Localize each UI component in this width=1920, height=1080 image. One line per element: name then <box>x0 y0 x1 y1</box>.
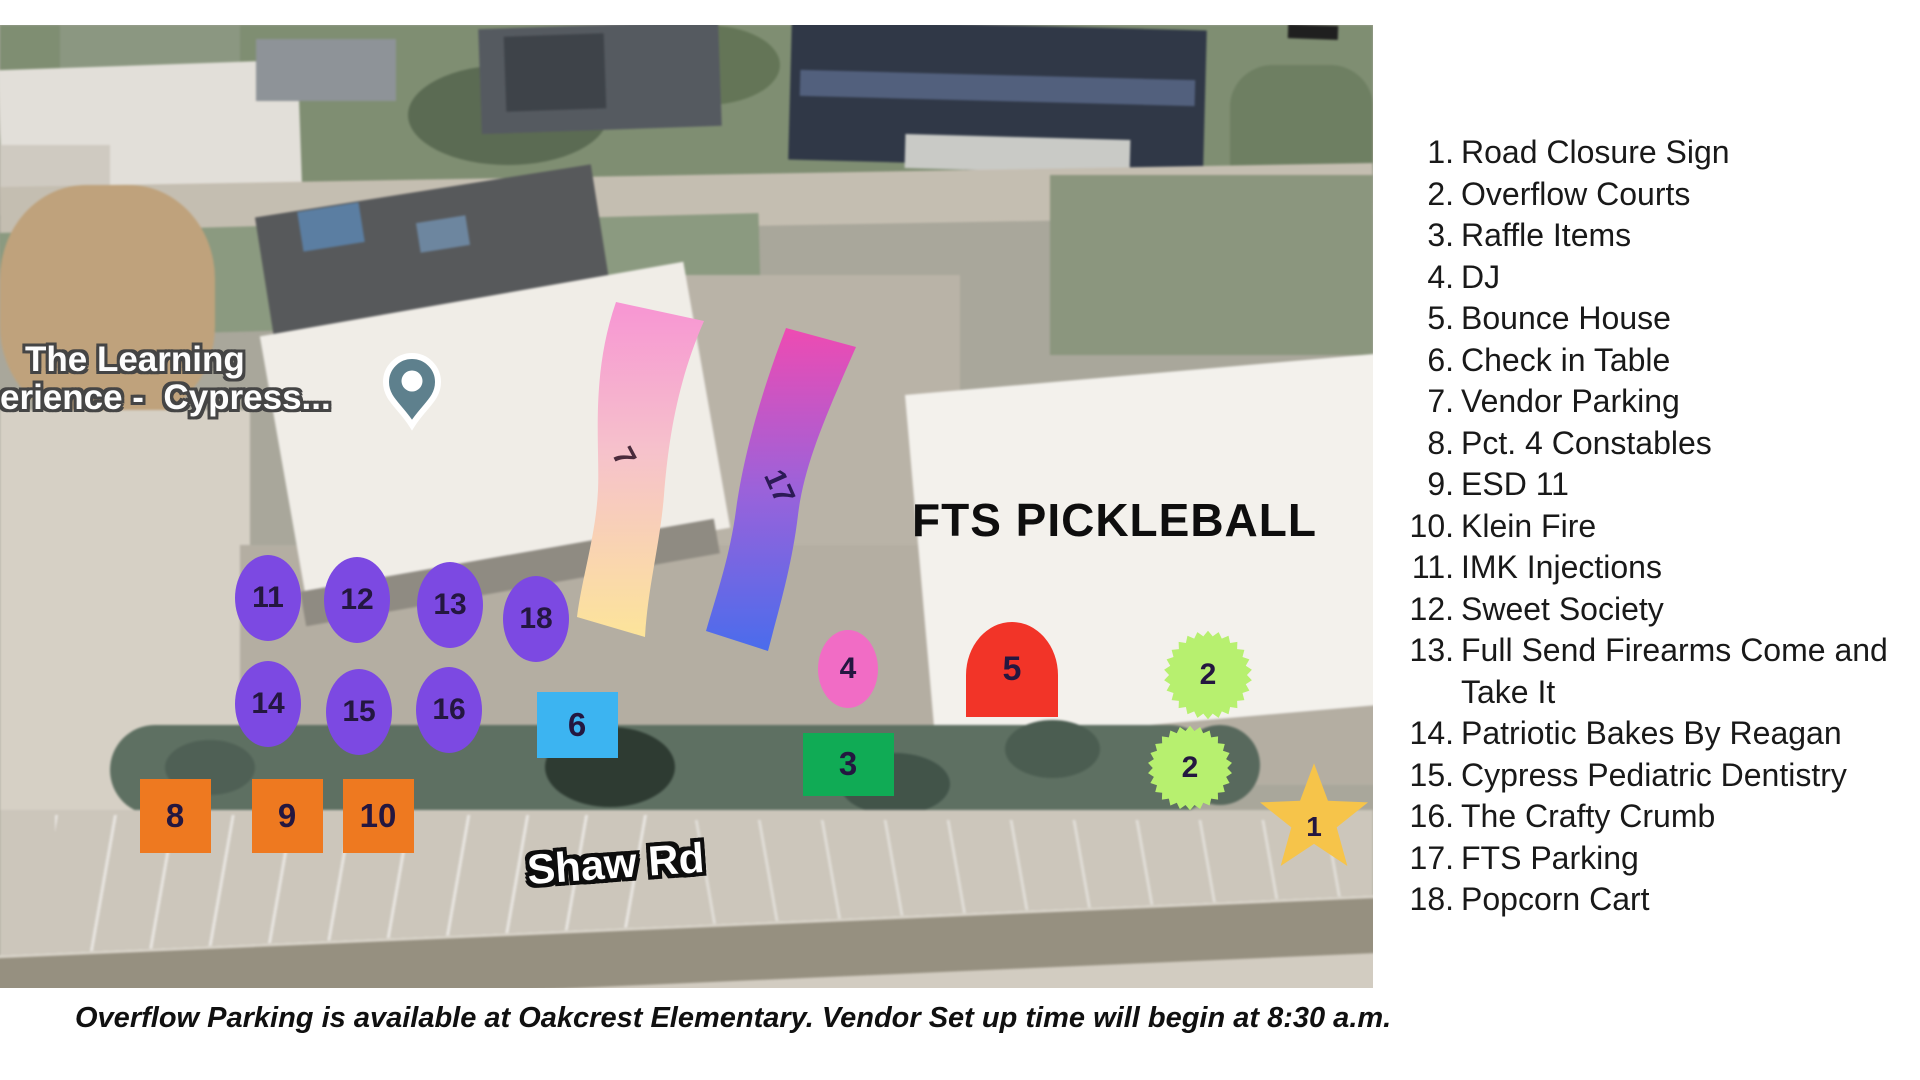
satellite-map: 1112131814151689106345221 7 17 The Learn… <box>0 25 1373 988</box>
footer-note: Overflow Parking is available at Oakcres… <box>75 1002 1391 1035</box>
legend-item-3: 3.Raffle Items <box>1390 215 1909 257</box>
legend-item-label: Patriotic Bakes By Reagan <box>1461 713 1909 755</box>
legend-item-label: The Crafty Crumb <box>1461 796 1909 838</box>
marker-14: 14 <box>235 661 301 747</box>
legend-item-number: 14. <box>1390 713 1454 755</box>
legend-item-number: 2. <box>1390 174 1454 216</box>
legend-item-number: 1. <box>1390 132 1454 174</box>
marker-1-number: 1 <box>1306 811 1322 843</box>
legend-item-number: 9. <box>1390 464 1454 506</box>
legend-item-number: 4. <box>1390 257 1454 299</box>
marker-12: 12 <box>324 557 390 643</box>
legend-item-number: 8. <box>1390 423 1454 465</box>
legend-item-label: DJ <box>1461 257 1909 299</box>
legend-item-label: Sweet Society <box>1461 589 1909 631</box>
place-label-line2: erience - Cypress... <box>0 378 331 418</box>
legend-item-8: 8.Pct. 4 Constables <box>1390 423 1909 465</box>
legend-item-label: Cypress Pediatric Dentistry <box>1461 755 1909 797</box>
marker-8: 8 <box>140 779 211 853</box>
legend-item-13: 13.Full Send Firearms Come and Take It <box>1390 630 1909 713</box>
legend-item-label: Vendor Parking <box>1461 381 1909 423</box>
legend-item-label: Overflow Courts <box>1461 174 1909 216</box>
legend-item-number: 17. <box>1390 838 1454 880</box>
legend-item-label: Klein Fire <box>1461 506 1909 548</box>
legend-item-number: 16. <box>1390 796 1454 838</box>
legend-item-15: 15.Cypress Pediatric Dentistry <box>1390 755 1909 797</box>
legend-item-number: 18. <box>1390 879 1454 921</box>
marker-9: 9 <box>252 779 323 853</box>
legend-item-1: 1.Road Closure Sign <box>1390 132 1909 174</box>
legend-item-label: Road Closure Sign <box>1461 132 1909 174</box>
legend-item-number: 7. <box>1390 381 1454 423</box>
legend-item-18: 18.Popcorn Cart <box>1390 879 1909 921</box>
venue-label: FTS PICKLEBALL <box>912 493 1317 547</box>
legend-item-label: Raffle Items <box>1461 215 1909 257</box>
legend-item-number: 13. <box>1390 630 1454 713</box>
legend-item-label: ESD 11 <box>1461 464 1909 506</box>
legend-item-label: Bounce House <box>1461 298 1909 340</box>
legend-item-17: 17.FTS Parking <box>1390 838 1909 880</box>
legend-item-number: 15. <box>1390 755 1454 797</box>
legend-item-number: 11. <box>1390 547 1454 589</box>
legend-list: 1.Road Closure Sign2.Overflow Courts3.Ra… <box>1390 132 1909 921</box>
marker-4: 4 <box>818 630 878 708</box>
legend-item-label: Check in Table <box>1461 340 1909 382</box>
marker-15: 15 <box>326 669 392 755</box>
marker-2-number: 2 <box>1182 751 1199 785</box>
marker-6: 6 <box>537 692 618 758</box>
legend-item-number: 3. <box>1390 215 1454 257</box>
legend-item-number: 12. <box>1390 589 1454 631</box>
legend-item-12: 12.Sweet Society <box>1390 589 1909 631</box>
marker-3: 3 <box>803 733 894 796</box>
marker-16: 16 <box>416 667 482 753</box>
legend-item-number: 5. <box>1390 298 1454 340</box>
legend-item-label: Full Send Firearms Come and Take It <box>1461 630 1909 713</box>
legend-item-16: 16.The Crafty Crumb <box>1390 796 1909 838</box>
legend-item-9: 9.ESD 11 <box>1390 464 1909 506</box>
marker-5: 5 <box>966 622 1058 717</box>
marker-2-number: 2 <box>1200 658 1217 692</box>
marker-13: 13 <box>417 562 483 648</box>
legend-item-5: 5.Bounce House <box>1390 298 1909 340</box>
legend-item-2: 2.Overflow Courts <box>1390 174 1909 216</box>
legend-item-label: Popcorn Cart <box>1461 879 1909 921</box>
legend-item-label: Pct. 4 Constables <box>1461 423 1909 465</box>
legend-item-14: 14.Patriotic Bakes By Reagan <box>1390 713 1909 755</box>
event-map-flyer: 1112131814151689106345221 7 17 The Learn… <box>0 0 1920 1080</box>
legend-item-10: 10.Klein Fire <box>1390 506 1909 548</box>
legend-item-number: 10. <box>1390 506 1454 548</box>
marker-18: 18 <box>503 576 569 662</box>
legend-item-11: 11.IMK Injections <box>1390 547 1909 589</box>
legend-item-7: 7.Vendor Parking <box>1390 381 1909 423</box>
marker-10: 10 <box>343 779 414 853</box>
legend-item-4: 4.DJ <box>1390 257 1909 299</box>
legend-item-number: 6. <box>1390 340 1454 382</box>
place-label-line1: The Learning <box>25 340 245 380</box>
legend-item-6: 6.Check in Table <box>1390 340 1909 382</box>
marker-11: 11 <box>235 555 301 641</box>
legend-item-label: FTS Parking <box>1461 838 1909 880</box>
legend-item-label: IMK Injections <box>1461 547 1909 589</box>
